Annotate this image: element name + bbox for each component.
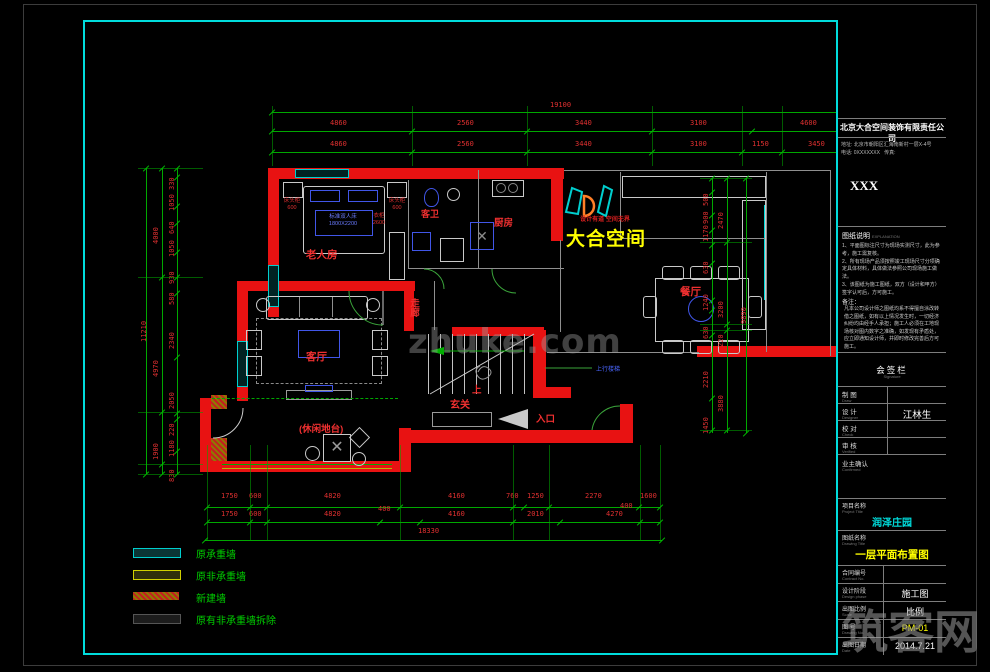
dim-label: 3880 xyxy=(717,395,725,412)
wall-stair-bottom xyxy=(533,387,571,398)
dining-chair-1 xyxy=(662,266,684,280)
wall-left-upper xyxy=(268,168,279,265)
room-label-kitchen: 厨房 xyxy=(494,215,513,229)
dim-label: 3200 xyxy=(717,301,725,318)
extension-line xyxy=(138,464,203,465)
dim-label: 400 xyxy=(620,502,633,510)
entrance-label: 入口 xyxy=(536,411,555,425)
watermark-corner: 筑客网 xyxy=(842,596,980,662)
dim-label: 4160 xyxy=(448,510,465,518)
pillow-left xyxy=(310,190,340,202)
nightstand-left-label: 床头柜600 xyxy=(279,198,305,211)
dim-label: 1750 xyxy=(221,492,238,500)
legend-label: 原有非承重墙拆除 xyxy=(196,612,276,627)
dim-label: 3440 xyxy=(575,119,592,127)
armchair-left-2 xyxy=(246,356,262,376)
explanation-notes: 1、平面图标注尺寸为现场实测尺寸，此为参考，施工需复核。 2、所有现场产品须按照… xyxy=(842,243,942,297)
dim-label: 4820 xyxy=(324,492,341,500)
drawing-label: 图纸名称Drawing Title xyxy=(842,533,866,546)
sign-row-design: 设 计Designer 江林生 xyxy=(838,403,946,420)
leisure-stool-3 xyxy=(352,452,366,466)
side-lamp-left xyxy=(256,298,270,312)
nightstand-right xyxy=(387,182,407,198)
owner-confirm-label: 业主确认Confirmed xyxy=(842,458,868,472)
armchair-right-1 xyxy=(372,330,388,350)
dim-label: 4600 xyxy=(800,119,817,127)
bed-label: 标准双人床1800X2200 xyxy=(317,214,369,227)
dim-label: 2340 xyxy=(168,332,176,349)
dim-label: 2560 xyxy=(457,119,474,127)
sheet-code: XXX xyxy=(850,178,878,194)
legend: 原承重墙 原非承重墙 新建墙 原有非承重墙拆除 xyxy=(133,546,393,636)
extension-line xyxy=(652,106,653,166)
dim-label: 9890 xyxy=(740,307,748,324)
sofa-div-2 xyxy=(332,297,333,317)
wardrobe xyxy=(389,232,405,280)
room-label-corridor: 走廊 xyxy=(406,298,420,317)
company-address: 地址: 北京市朝阳区汇海南新村一层X-4号 xyxy=(841,141,932,148)
line-annex-top xyxy=(564,170,830,171)
remark-title: 备注： xyxy=(842,297,860,306)
row-contract: 合同编号Contract No. xyxy=(838,565,946,583)
extension-line xyxy=(250,445,251,540)
dim-label: 18330 xyxy=(418,527,439,535)
legend-label: 新建墙 xyxy=(196,590,226,605)
leisure-stool-1 xyxy=(305,446,320,461)
dim-label: 3440 xyxy=(575,140,592,148)
wall-entry-bottom xyxy=(399,430,633,443)
extension-line xyxy=(660,445,661,540)
legend-label: 原非承重墙 xyxy=(196,568,246,583)
extension-line xyxy=(267,445,268,540)
line-dining-right xyxy=(766,172,767,352)
project-label: 项目名称Project Title xyxy=(842,501,866,514)
sign-row-check: 校 对Check xyxy=(838,420,946,437)
room-label-guest-bath: 客卫 xyxy=(421,207,439,220)
dim-label: 220 xyxy=(168,423,176,436)
room-label-elder-bedroom: 老人房 xyxy=(306,247,338,262)
dim-label: 11210 xyxy=(140,321,148,342)
dining-chair-8 xyxy=(748,296,762,318)
stair-up-label: 上 xyxy=(472,382,482,396)
stair-note-label: 上行楼梯 xyxy=(596,364,620,373)
explanation-title: 图纸说明 EXPLANATION xyxy=(842,231,900,241)
logo-mark-icon xyxy=(566,188,582,214)
window-top xyxy=(295,169,349,178)
extension-line xyxy=(742,106,743,166)
armchair-left-1 xyxy=(246,330,262,350)
wall-leisure-bottom xyxy=(200,461,411,472)
wall-bedroom-bottom xyxy=(237,281,415,291)
dim-label: 1600 xyxy=(640,492,657,500)
dim-label: 4000 xyxy=(152,227,160,244)
shower-tray xyxy=(440,238,464,262)
dim-label: 2560 xyxy=(457,140,474,148)
extension-line xyxy=(700,330,752,331)
extension-line xyxy=(138,474,203,475)
legend-swatch-nonbearing xyxy=(133,570,181,580)
extension-line xyxy=(527,106,528,166)
dim-label: 4270 xyxy=(606,510,623,518)
dim-label: 1250 xyxy=(527,492,544,500)
legend-label: 原承重墙 xyxy=(196,546,236,561)
company-phone: 电话: 0XXXXXXX 传真: xyxy=(841,149,895,156)
legend-swatch-newwall xyxy=(133,592,179,600)
dim-label: 1750 xyxy=(221,510,238,518)
dim-label: 4970 xyxy=(152,360,160,377)
dim-label: 4820 xyxy=(324,510,341,518)
line-kitchen-right xyxy=(560,240,561,332)
side-lamp-right xyxy=(366,298,380,312)
sign-row-verify: 审 核Verified xyxy=(838,437,946,454)
sign-title-en: Signature xyxy=(838,375,946,379)
wall-entry-stub xyxy=(620,404,633,443)
stove-burner-1 xyxy=(496,183,506,193)
project-name: 润泽庄园 xyxy=(838,514,946,529)
extension-line xyxy=(400,445,401,540)
stove-burner-2 xyxy=(508,183,518,193)
newwall-hatch-2 xyxy=(211,438,227,461)
dining-chair-4 xyxy=(662,340,684,354)
dim-label: 3450 xyxy=(808,140,825,148)
room-label-entry: 玄关 xyxy=(450,396,470,411)
extension-line xyxy=(272,106,273,166)
drawing-title: 一层平面布置图 xyxy=(838,547,946,562)
extension-line xyxy=(138,168,203,169)
entrance-arrow-icon xyxy=(498,409,528,429)
extension-line xyxy=(207,445,208,540)
nightstand-left xyxy=(283,182,303,198)
line-bath-left xyxy=(408,180,409,268)
dim-label: 2270 xyxy=(585,492,602,500)
dining-chair-7 xyxy=(643,296,657,318)
extension-line xyxy=(412,106,413,166)
dim-label: 1150 xyxy=(752,140,769,148)
extension-line xyxy=(513,445,514,540)
shoe-cabinet xyxy=(432,412,492,427)
pillow-right xyxy=(348,190,378,202)
sofa-div-1 xyxy=(299,297,300,317)
extension-line xyxy=(782,106,783,166)
dim-label: 1900 xyxy=(152,443,160,460)
toilet xyxy=(424,188,439,207)
dim-label: 630 xyxy=(702,261,710,274)
dim-label: 2210 xyxy=(702,371,710,388)
room-label-dining: 餐厅 xyxy=(680,284,701,299)
sofa xyxy=(266,296,368,320)
fridge: ✕ xyxy=(470,222,494,250)
armchair-right-2 xyxy=(372,356,388,376)
room-label-leisure: (休闲地台) xyxy=(299,421,343,435)
window-leisure-sill2 xyxy=(222,468,392,469)
leisure-stool-2 xyxy=(349,427,370,448)
logo-name: 大合空间 xyxy=(554,224,658,251)
dim-label: 1180 xyxy=(168,440,176,457)
dim-label: 4160 xyxy=(448,492,465,500)
wardrobe-label: 衣柜2600 xyxy=(368,213,390,226)
dim-label: 3100 xyxy=(690,119,707,127)
dim-label: 220 xyxy=(717,334,725,347)
dim-label: 2470 xyxy=(717,212,725,229)
remark-text: 凡本公司设计师之图纸均系不得擅自涂改转借之图纸，如有以上情况发生时，一切经济纠纷… xyxy=(844,306,942,351)
washer xyxy=(412,232,431,251)
dim-label: 2050 xyxy=(168,392,176,409)
platform-edge xyxy=(212,398,398,399)
title-block: 北京大合空间装饰有限责任公司 地址: 北京市朝阳区汇海南新村一层X-4号 电话:… xyxy=(836,20,946,655)
extension-line xyxy=(138,277,203,278)
nightstand-right-label: 床头柜600 xyxy=(384,198,410,211)
cad-floorplan-canvas: 标准双人床1800X2200 床头柜600 床头柜600 衣柜2600 ✕ xyxy=(0,0,990,672)
dining-chair-3 xyxy=(718,266,740,280)
dim-label: 2010 xyxy=(527,510,544,518)
extension-line xyxy=(549,445,550,540)
dim-label: 19100 xyxy=(550,101,571,109)
legend-swatch-bearing xyxy=(133,548,181,558)
tv xyxy=(305,385,333,392)
room-label-living: 客厅 xyxy=(306,349,327,364)
line-bath-bottom xyxy=(408,268,564,269)
watermark-center: zhuke.com xyxy=(408,322,622,362)
line-terrace-right xyxy=(830,170,831,356)
sink xyxy=(447,188,460,201)
extension-line xyxy=(700,242,752,243)
leisure-table: ✕ xyxy=(323,434,351,462)
extension-line xyxy=(700,178,752,179)
window-leisure-sill1 xyxy=(222,464,392,465)
logo-slogan: 设计有道 空间无界 xyxy=(557,214,653,223)
dim-label: 400 xyxy=(378,505,391,513)
extension-line xyxy=(640,445,641,540)
extension-line xyxy=(138,412,203,413)
dim-label: 3100 xyxy=(690,140,707,148)
dim-tick xyxy=(743,430,749,436)
line-bath-right xyxy=(478,170,479,268)
extension-line xyxy=(700,324,752,325)
legend-swatch-demolish xyxy=(133,614,181,624)
dim-label: 4860 xyxy=(330,140,347,148)
dim-label: 4860 xyxy=(330,119,347,127)
sign-row-draw: 制 图Draw xyxy=(838,386,946,403)
extension-line xyxy=(700,430,752,431)
dining-chair-5 xyxy=(690,340,712,354)
